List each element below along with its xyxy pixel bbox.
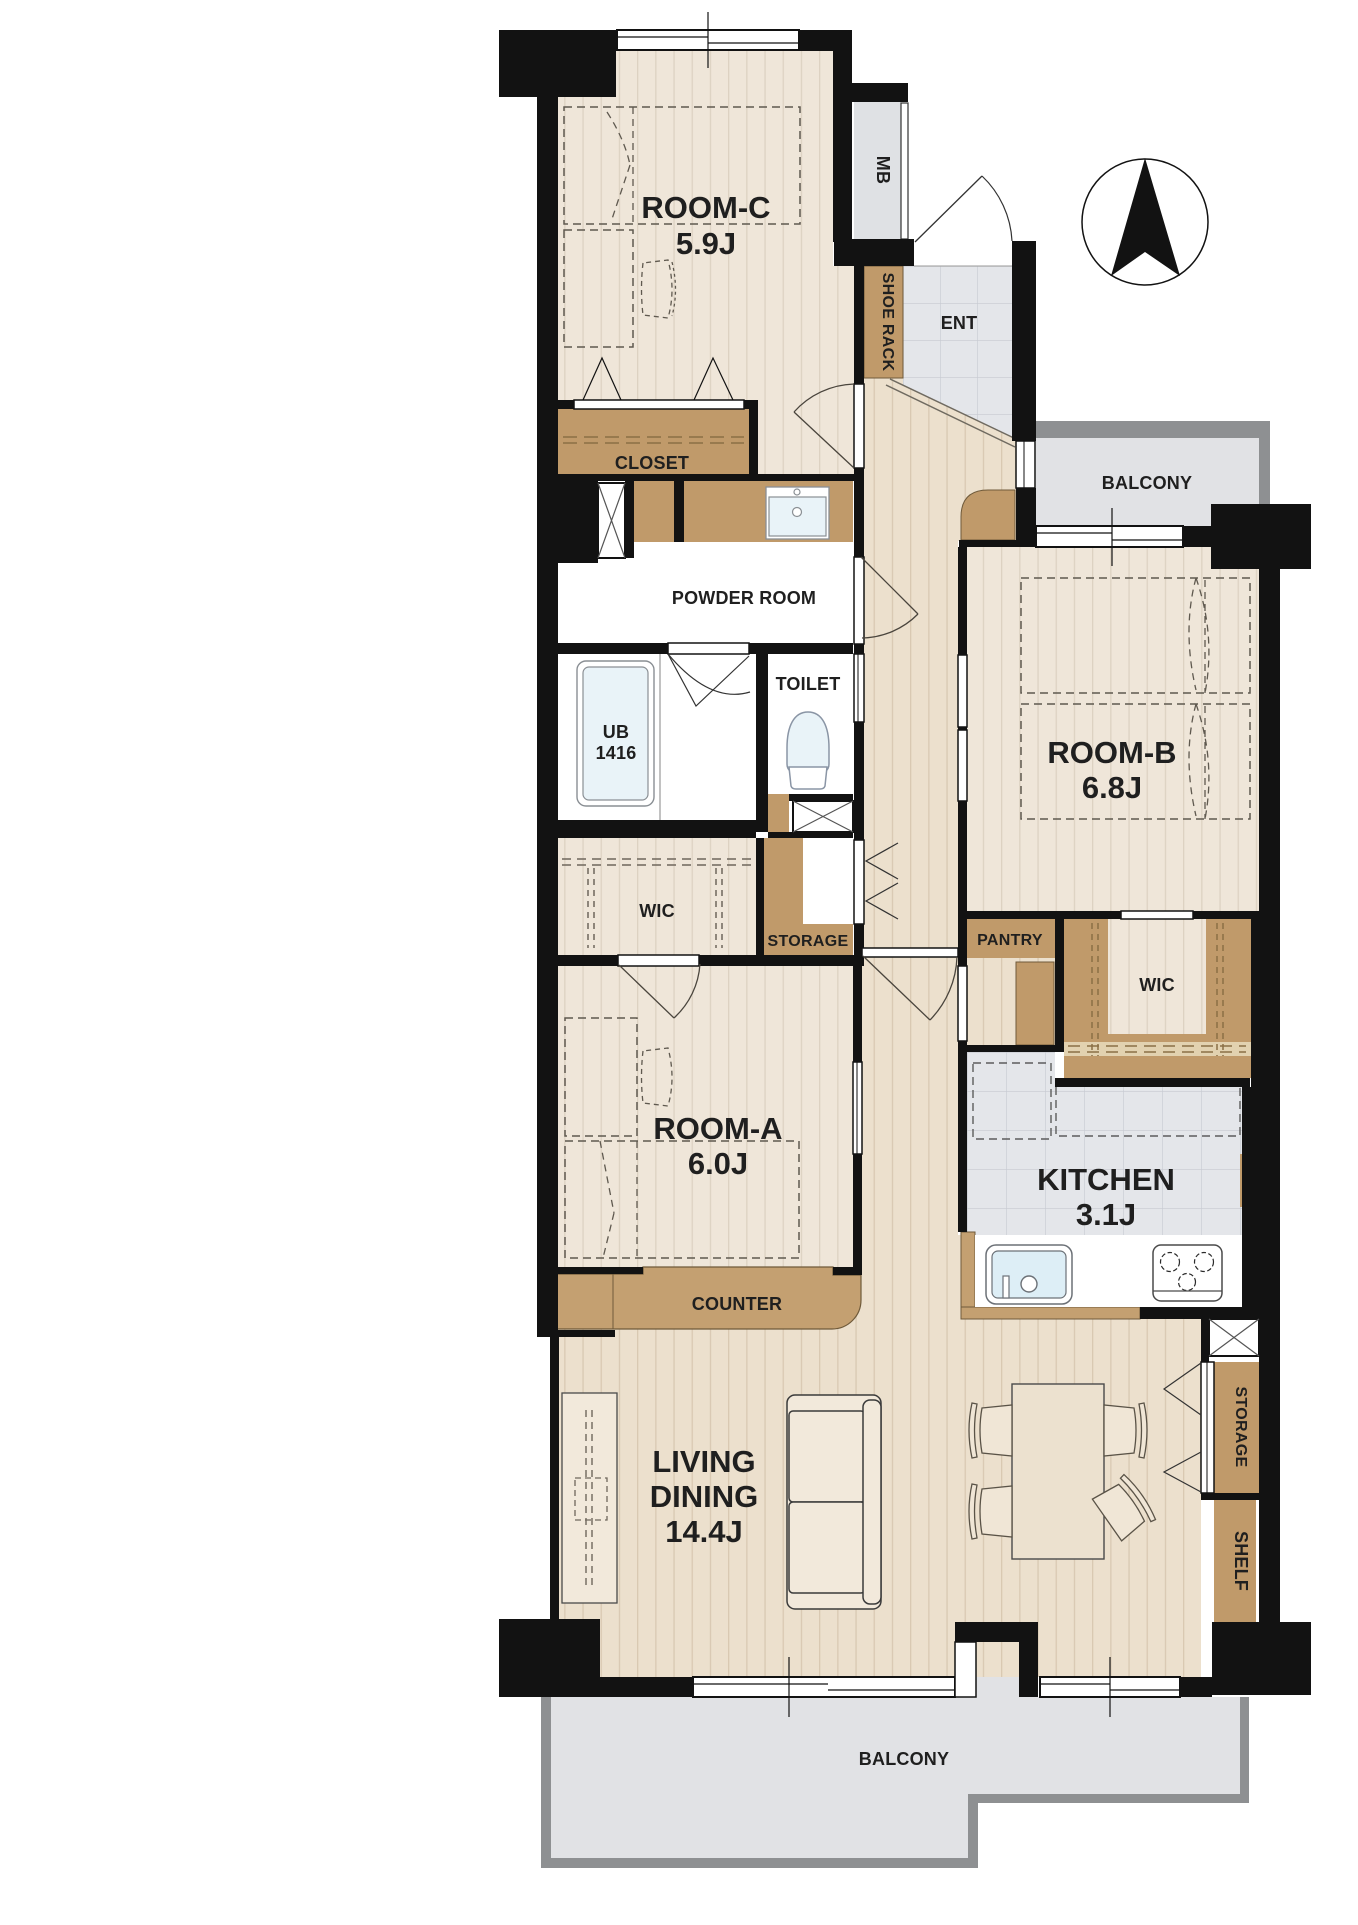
svg-text:LIVING: LIVING (652, 1444, 755, 1479)
svg-text:ENT: ENT (941, 313, 978, 333)
svg-text:STORAGE: STORAGE (768, 933, 849, 950)
svg-text:KITCHEN: KITCHEN (1037, 1162, 1175, 1197)
svg-text:WIC: WIC (1139, 975, 1175, 995)
svg-text:ROOM-A: ROOM-A (653, 1111, 782, 1146)
svg-text:14.4J: 14.4J (665, 1514, 743, 1549)
svg-text:ROOM-C: ROOM-C (641, 190, 770, 225)
svg-text:6.0J: 6.0J (688, 1146, 748, 1181)
svg-text:SHOE RACK: SHOE RACK (879, 273, 896, 372)
svg-text:STORAGE: STORAGE (1232, 1387, 1249, 1468)
svg-text:BALCONY: BALCONY (1102, 473, 1192, 493)
svg-text:DINING: DINING (650, 1479, 759, 1514)
svg-text:BALCONY: BALCONY (859, 1749, 949, 1769)
svg-text:POWDER ROOM: POWDER ROOM (672, 588, 816, 608)
svg-text:5.9J: 5.9J (676, 226, 736, 261)
svg-text:SHELF: SHELF (1231, 1531, 1251, 1591)
svg-text:1416: 1416 (596, 743, 637, 763)
svg-text:WIC: WIC (639, 901, 675, 921)
svg-text:TOILET: TOILET (776, 674, 841, 694)
svg-text:UB: UB (603, 722, 629, 742)
svg-text:6.8J: 6.8J (1082, 770, 1142, 805)
svg-text:CLOSET: CLOSET (615, 453, 689, 473)
svg-text:MB: MB (873, 156, 893, 184)
svg-text:COUNTER: COUNTER (692, 1294, 782, 1314)
svg-text:3.1J: 3.1J (1076, 1197, 1136, 1232)
svg-text:PANTRY: PANTRY (977, 932, 1043, 949)
svg-text:ROOM-B: ROOM-B (1047, 735, 1176, 770)
